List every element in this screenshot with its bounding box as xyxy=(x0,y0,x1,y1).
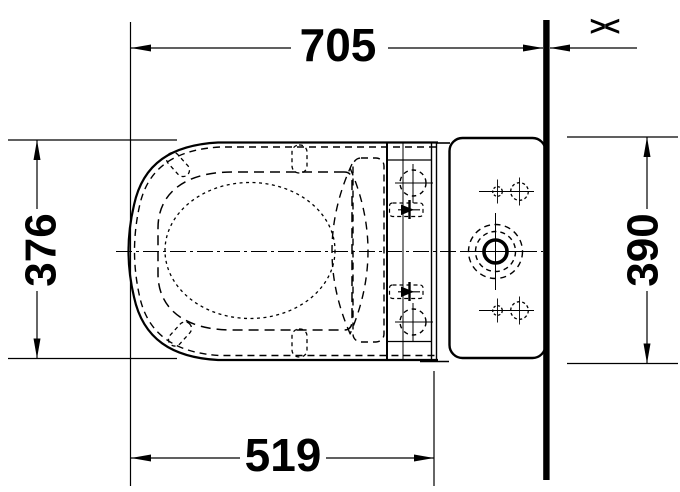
bowl-rim-outline xyxy=(165,183,335,319)
dimension-label-right: 390 xyxy=(619,213,668,286)
hinge-bolt-top xyxy=(395,164,433,203)
hinge-bolt-bottom xyxy=(395,303,433,341)
dimension-bottom: 519 xyxy=(131,429,434,481)
tank-mounting-hole-top xyxy=(479,178,534,206)
arrow-left-icon xyxy=(131,45,151,52)
bumper-bottom-center xyxy=(292,329,307,357)
slot-marker-icon xyxy=(401,287,414,298)
dimension-top: 705 xyxy=(131,19,543,71)
arrow-up-icon xyxy=(644,137,651,157)
dimension-left: 376 xyxy=(17,140,66,359)
dimension-label-top: 705 xyxy=(300,19,377,71)
fixing-slot-bottom xyxy=(390,282,424,301)
dimension-label-left: 376 xyxy=(17,213,66,286)
arrow-right-icon xyxy=(523,45,543,52)
bumper-bottom-left xyxy=(166,319,194,349)
fixing-slot-top xyxy=(390,200,424,219)
tank-outline xyxy=(450,138,546,358)
wall-section-line xyxy=(543,20,549,480)
tank-mounting-hole-bottom xyxy=(479,297,534,325)
flush-valve xyxy=(460,213,531,290)
drawing-canvas: 705 >< 376 390 519 xyxy=(0,0,680,492)
wall-gap-symbol: >< xyxy=(590,11,620,42)
arrow-left-icon xyxy=(550,45,570,52)
bumper-top-center xyxy=(292,145,307,173)
extension-lines xyxy=(8,22,678,486)
arrow-down-icon xyxy=(34,339,41,359)
arrow-down-icon xyxy=(644,344,651,364)
arrow-up-icon xyxy=(34,140,41,160)
slot-marker-icon xyxy=(401,205,414,216)
bumper-top-left xyxy=(164,150,192,180)
arrow-left-icon xyxy=(131,455,151,462)
lid-contour xyxy=(332,158,384,342)
dimension-right: 390 xyxy=(619,137,668,364)
wall-offset-indicator: >< xyxy=(550,11,637,52)
dimension-label-bottom: 519 xyxy=(245,429,322,481)
technical-drawing-toilet-plan: 705 >< 376 390 519 xyxy=(0,0,680,492)
arrow-right-icon xyxy=(414,455,434,462)
